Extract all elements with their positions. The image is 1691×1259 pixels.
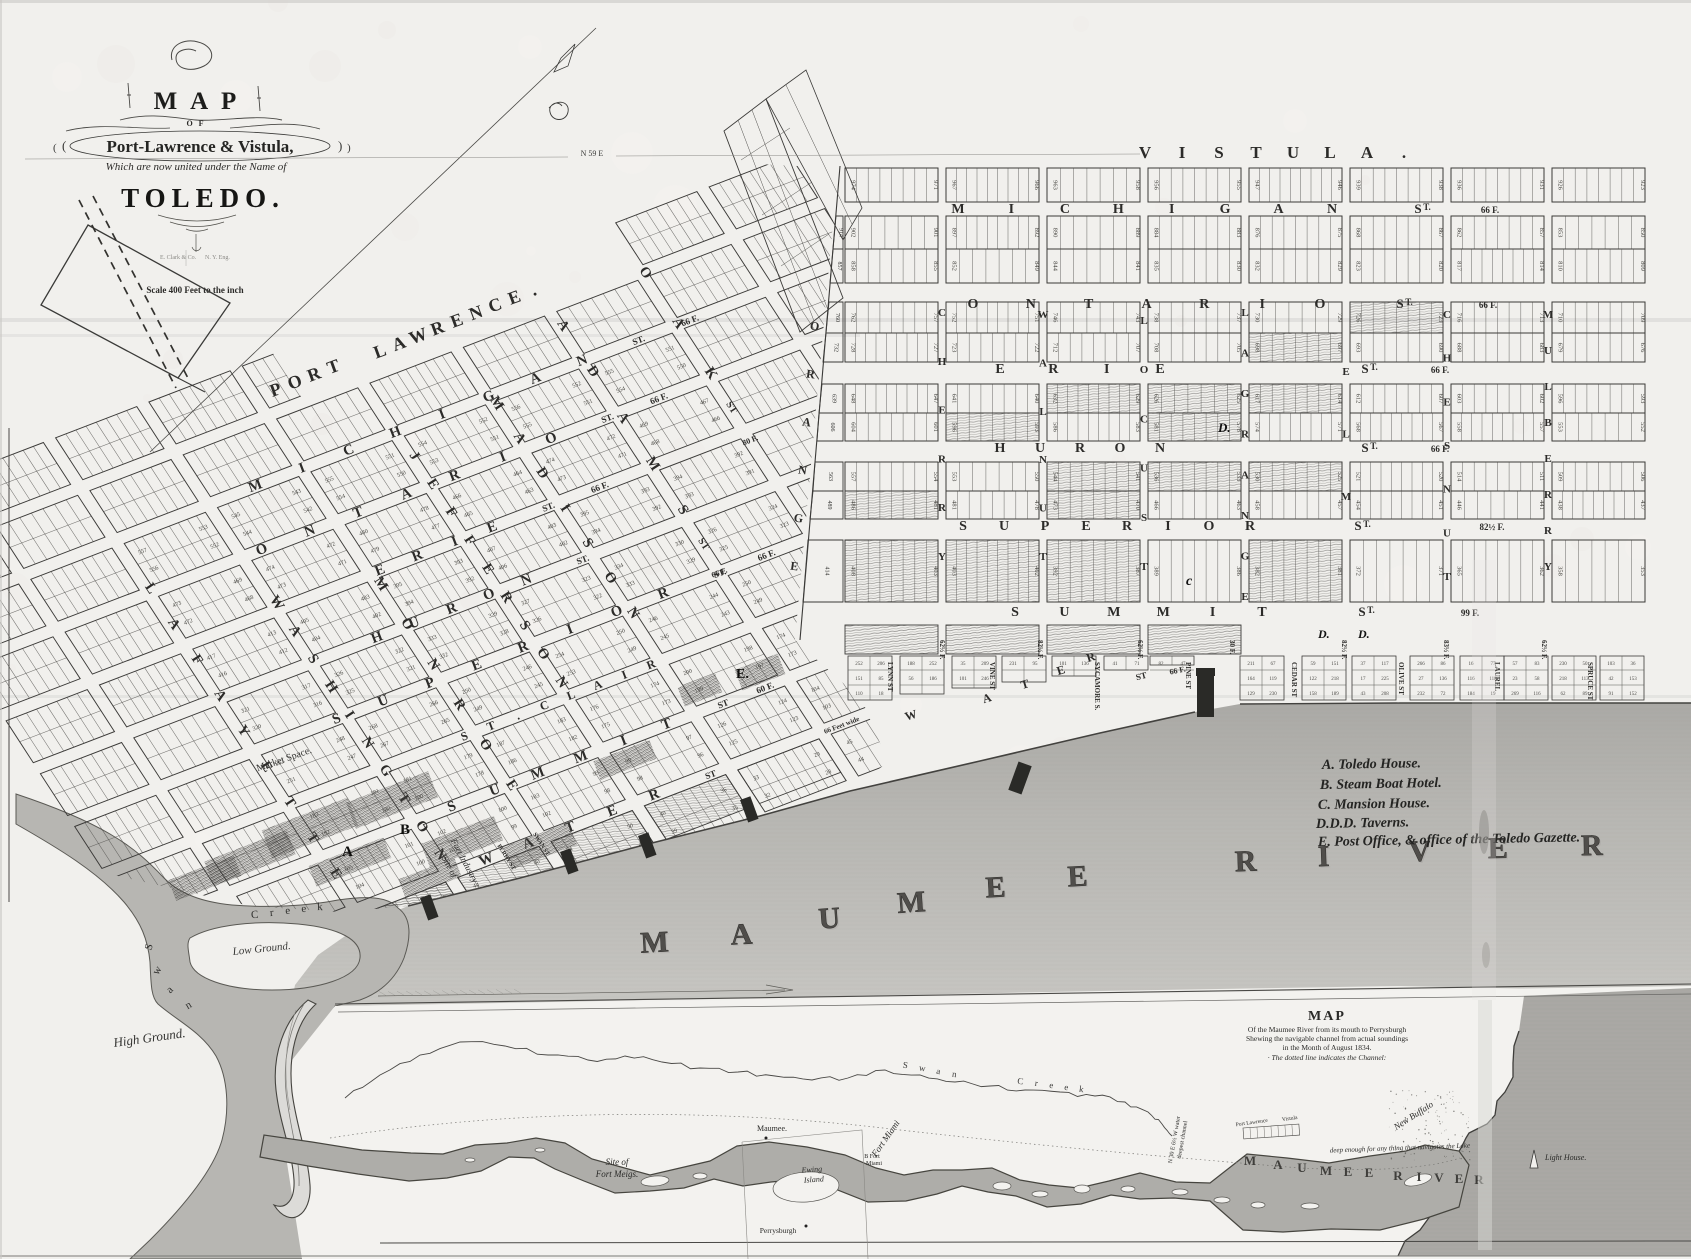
svg-text:in the Month of August 1834.: in the Month of August 1834. <box>1283 1043 1372 1052</box>
svg-text:82½ F.: 82½ F. <box>1480 522 1505 532</box>
svg-text:603: 603 <box>1456 394 1463 404</box>
svg-text:G: G <box>1220 202 1231 217</box>
svg-text:810: 810 <box>1557 261 1564 271</box>
svg-text:414: 414 <box>824 567 830 576</box>
svg-text:Miami: Miami <box>866 1161 882 1167</box>
svg-text:211: 211 <box>1247 662 1255 667</box>
svg-text:890: 890 <box>1052 228 1059 238</box>
svg-text:62½ F.: 62½ F. <box>938 640 946 660</box>
svg-text:441: 441 <box>1538 500 1545 510</box>
svg-text:857: 857 <box>836 262 842 271</box>
svg-text:632: 632 <box>1052 394 1059 404</box>
svg-text:486: 486 <box>850 500 857 511</box>
svg-text:509: 509 <box>1557 472 1564 482</box>
svg-text:U: U <box>1544 345 1552 357</box>
svg-text:857: 857 <box>1538 228 1545 239</box>
svg-text:M: M <box>1157 605 1170 620</box>
svg-text:N: N <box>1327 202 1337 217</box>
svg-text:SYCAMORE S.: SYCAMORE S. <box>1093 662 1101 710</box>
svg-text:A: A <box>1361 143 1375 162</box>
svg-text:Of the Maumee River from its m: Of the Maumee River from its mouth to Pe… <box>1248 1025 1406 1034</box>
svg-text:I: I <box>1179 143 1188 162</box>
svg-text:U: U <box>817 901 841 935</box>
svg-text:693: 693 <box>1355 343 1362 353</box>
svg-text:B. Steam Boat Hotel.: B. Steam Boat Hotel. <box>1319 776 1442 793</box>
svg-text:A: A <box>1241 469 1249 481</box>
svg-text:586: 586 <box>1052 422 1059 433</box>
svg-text:Island: Island <box>803 1174 826 1185</box>
svg-text:U: U <box>1039 503 1047 515</box>
svg-text:Maumee.: Maumee. <box>757 1124 787 1133</box>
svg-text:218: 218 <box>1331 677 1339 682</box>
svg-text:853: 853 <box>1557 228 1564 238</box>
svg-text:101: 101 <box>959 677 967 682</box>
svg-text:544: 544 <box>1052 472 1059 483</box>
svg-text:58: 58 <box>1535 677 1541 682</box>
svg-text:593: 593 <box>1639 394 1646 404</box>
svg-text:639: 639 <box>830 394 836 403</box>
svg-text:966: 966 <box>1033 180 1040 191</box>
svg-text:C: C <box>1443 309 1451 321</box>
svg-text:626: 626 <box>1153 394 1160 405</box>
svg-text:823: 823 <box>1355 261 1362 271</box>
svg-text:709: 709 <box>1639 313 1646 323</box>
svg-text:738: 738 <box>1153 313 1160 323</box>
svg-text:U: U <box>1297 1160 1307 1175</box>
svg-text:E: E <box>995 362 1004 377</box>
svg-text:438: 438 <box>1557 500 1564 510</box>
svg-text:A. Toledo House.: A. Toledo House. <box>1321 756 1421 773</box>
svg-text:N 59 E: N 59 E <box>581 149 604 158</box>
svg-text:30 F.: 30 F. <box>1228 640 1236 654</box>
svg-text:S: S <box>959 519 967 534</box>
svg-text:17: 17 <box>1361 677 1367 682</box>
svg-text:O: O <box>1315 297 1326 312</box>
svg-text:358: 358 <box>1557 566 1564 576</box>
svg-text:567: 567 <box>1437 422 1444 433</box>
svg-text:e: e <box>285 905 291 917</box>
svg-text:R: R <box>1199 297 1210 312</box>
svg-text:66 F.: 66 F. <box>1479 300 1497 310</box>
svg-text:558: 558 <box>1456 422 1463 432</box>
svg-text:S: S <box>1358 604 1365 619</box>
svg-text:E: E <box>1344 1164 1353 1179</box>
svg-text:403: 403 <box>951 566 958 576</box>
svg-text:408: 408 <box>850 566 857 576</box>
svg-text:23: 23 <box>1513 677 1519 682</box>
svg-text:R: R <box>1241 429 1250 441</box>
svg-text:Port-Lawrence & Vistula,: Port-Lawrence & Vistula, <box>106 137 293 156</box>
svg-text:I: I <box>1169 202 1174 217</box>
svg-text:H: H <box>995 441 1006 456</box>
svg-text:72: 72 <box>1441 692 1447 697</box>
svg-text:67: 67 <box>1271 662 1277 667</box>
svg-text:36: 36 <box>1631 662 1637 667</box>
svg-text:62½ F.: 62½ F. <box>1540 640 1548 660</box>
svg-text:H: H <box>938 356 947 368</box>
svg-text:66 F.: 66 F. <box>1431 365 1449 375</box>
svg-text:923: 923 <box>1639 180 1646 190</box>
svg-text:C: C <box>938 307 946 319</box>
svg-text:91: 91 <box>1609 692 1615 697</box>
svg-text:A: A <box>1039 357 1047 369</box>
svg-text:D.: D. <box>1317 627 1330 641</box>
svg-text:641: 641 <box>951 394 958 404</box>
svg-text:T.: T. <box>1363 519 1371 529</box>
svg-text:581: 581 <box>1153 422 1160 432</box>
svg-text:S: S <box>1214 143 1225 162</box>
svg-text:R: R <box>1234 845 1257 879</box>
svg-text:473: 473 <box>1052 500 1059 510</box>
svg-text:LYNN ST: LYNN ST <box>886 662 894 692</box>
svg-text:E: E <box>938 405 945 417</box>
svg-text:E. Clark & Co.: E. Clark & Co. <box>160 255 197 261</box>
svg-text:E: E <box>1155 362 1164 377</box>
svg-text:850: 850 <box>1639 228 1646 238</box>
svg-text:849: 849 <box>1033 261 1040 271</box>
svg-text:947: 947 <box>1254 180 1261 191</box>
svg-text:489: 489 <box>826 501 832 510</box>
svg-text:S: S <box>1361 361 1368 376</box>
svg-text:82½ F.: 82½ F. <box>1340 640 1348 660</box>
svg-text:612: 612 <box>1355 394 1362 404</box>
svg-text:MAP: MAP <box>1308 1009 1346 1024</box>
svg-text:L: L <box>1342 429 1349 441</box>
svg-text:OLIVE ST: OLIVE ST <box>1397 662 1405 695</box>
svg-text:679: 679 <box>1557 343 1564 353</box>
svg-text:S: S <box>1444 440 1450 452</box>
svg-text:T.: T. <box>1370 362 1378 372</box>
svg-text:647: 647 <box>932 394 939 405</box>
svg-text:P: P <box>1041 519 1050 534</box>
svg-text:T: T <box>1443 571 1451 583</box>
svg-text:392: 392 <box>1052 566 1059 576</box>
svg-text:231: 231 <box>1009 662 1017 667</box>
svg-text:470: 470 <box>1134 500 1141 510</box>
svg-text:727: 727 <box>932 343 939 354</box>
svg-text:S: S <box>1396 296 1403 311</box>
svg-text:L: L <box>1544 381 1551 393</box>
svg-text:153: 153 <box>1629 677 1637 682</box>
svg-text:152: 152 <box>1629 692 1637 697</box>
svg-text:59: 59 <box>1311 662 1317 667</box>
svg-text:Shewing the navigable channel: Shewing the navigable channel from actua… <box>1246 1034 1408 1043</box>
svg-text:O: O <box>1140 364 1149 376</box>
svg-text:L: L <box>1140 315 1147 327</box>
svg-text:82: 82 <box>1159 662 1165 667</box>
svg-text:V: V <box>1139 143 1153 162</box>
svg-text:D.: D. <box>1357 627 1370 641</box>
svg-text:688: 688 <box>1456 343 1463 353</box>
svg-text:): ) <box>347 142 351 154</box>
svg-text:926: 926 <box>1557 180 1564 191</box>
svg-text:Light House.: Light House. <box>1544 1153 1586 1162</box>
svg-text:601: 601 <box>932 422 939 432</box>
svg-text:640: 640 <box>1033 394 1040 404</box>
svg-text:I: I <box>1210 605 1215 620</box>
svg-text:151: 151 <box>855 677 863 682</box>
svg-text:H: H <box>1113 202 1124 217</box>
svg-text:186: 186 <box>929 677 937 682</box>
svg-text:U: U <box>1443 527 1451 539</box>
svg-text:252: 252 <box>855 662 863 667</box>
svg-text:596: 596 <box>951 422 958 433</box>
svg-text:R: R <box>1393 1168 1403 1183</box>
svg-text:82½ F.: 82½ F. <box>1036 640 1044 660</box>
svg-text:189: 189 <box>1331 692 1339 697</box>
svg-text:729: 729 <box>1336 313 1343 323</box>
svg-text:T.: T. <box>1405 297 1413 307</box>
svg-text:B: B <box>400 822 410 838</box>
svg-text:T.: T. <box>1367 605 1375 615</box>
svg-text:841: 841 <box>1134 261 1141 271</box>
svg-text:218: 218 <box>1559 677 1567 682</box>
svg-text:R: R <box>1544 489 1553 501</box>
svg-text:602: 602 <box>1538 394 1545 404</box>
svg-text:S: S <box>1354 518 1361 533</box>
svg-text:S: S <box>1141 512 1147 524</box>
svg-text:353: 353 <box>1639 566 1646 576</box>
svg-text:A: A <box>1274 202 1285 217</box>
svg-text:E: E <box>1365 1165 1374 1180</box>
svg-text:G: G <box>1241 550 1250 562</box>
svg-text:158: 158 <box>1309 692 1317 697</box>
svg-text:550: 550 <box>1033 472 1040 482</box>
svg-text:506: 506 <box>1639 472 1646 483</box>
svg-text:M: M <box>896 885 927 920</box>
svg-text:O: O <box>1115 441 1126 456</box>
svg-text:382: 382 <box>1254 566 1261 576</box>
svg-text:I: I <box>1009 202 1014 217</box>
svg-text:T: T <box>1039 551 1047 563</box>
svg-text:269: 269 <box>1511 692 1519 697</box>
svg-text:437: 437 <box>1639 500 1646 511</box>
svg-text:728: 728 <box>850 343 857 353</box>
svg-text:E: E <box>1544 453 1551 465</box>
svg-text:884: 884 <box>1153 228 1160 239</box>
svg-text:35: 35 <box>961 662 967 667</box>
svg-text:967: 967 <box>951 180 958 191</box>
svg-text:D.D.D. Taverns.: D.D.D. Taverns. <box>1315 815 1409 832</box>
svg-text:C: C <box>1140 413 1148 425</box>
svg-text:814: 814 <box>1538 261 1545 272</box>
svg-text:N: N <box>1241 510 1249 522</box>
svg-text:U: U <box>1287 143 1301 162</box>
svg-text:50: 50 <box>1583 662 1589 667</box>
svg-text:708: 708 <box>1153 343 1160 353</box>
svg-text:A: A <box>342 844 353 860</box>
svg-text:Ewing: Ewing <box>800 1164 822 1174</box>
svg-text:867: 867 <box>1437 228 1444 239</box>
svg-text:W: W <box>1038 309 1049 321</box>
svg-text:230: 230 <box>1269 692 1277 697</box>
svg-text:83: 83 <box>1535 662 1541 667</box>
svg-text:955: 955 <box>1235 180 1242 190</box>
svg-text:L: L <box>1039 406 1046 418</box>
svg-text:830: 830 <box>1235 261 1242 271</box>
svg-text:H: H <box>1443 353 1452 365</box>
svg-text:710: 710 <box>1557 313 1564 323</box>
svg-text:723: 723 <box>951 343 958 353</box>
svg-text:232: 232 <box>1417 692 1425 697</box>
svg-text:712: 712 <box>1052 343 1059 353</box>
svg-text:Y: Y <box>938 551 946 563</box>
svg-text:604: 604 <box>850 422 857 433</box>
svg-text:18: 18 <box>879 692 885 697</box>
svg-text:365: 365 <box>1456 566 1463 576</box>
svg-text:E: E <box>1081 519 1090 534</box>
svg-text:I: I <box>1259 297 1264 312</box>
svg-text:852: 852 <box>951 261 958 271</box>
svg-text:M: M <box>1341 491 1352 503</box>
svg-text:820: 820 <box>1437 261 1444 271</box>
svg-text:T.: T. <box>1423 202 1431 212</box>
svg-text:M: M <box>639 925 669 959</box>
svg-text:VINE ST: VINE ST <box>988 662 996 690</box>
svg-text:M: M <box>1107 605 1120 620</box>
svg-text:N. Y. Eng.: N. Y. Eng. <box>205 255 230 261</box>
svg-text:83½ F.: 83½ F. <box>1442 640 1450 660</box>
svg-text:110: 110 <box>855 692 863 697</box>
svg-text:C: C <box>250 909 259 922</box>
svg-text:· The dotted line indicates th: · The dotted line indicates the Channel: <box>1268 1053 1387 1062</box>
svg-text:403: 403 <box>932 566 939 576</box>
svg-text:V: V <box>1434 1170 1444 1185</box>
svg-text:892: 892 <box>1033 228 1040 238</box>
svg-text:514: 514 <box>1456 472 1463 483</box>
svg-text:151: 151 <box>1331 662 1339 667</box>
svg-text:454: 454 <box>1355 500 1362 511</box>
svg-text:E: E <box>1443 396 1450 408</box>
svg-text:G: G <box>793 510 804 525</box>
svg-text:862: 862 <box>1456 228 1463 238</box>
svg-text:S: S <box>1414 201 1421 216</box>
svg-text:698: 698 <box>1254 343 1261 353</box>
svg-text:89: 89 <box>1583 692 1589 697</box>
svg-text:113: 113 <box>1581 677 1589 682</box>
svg-text:M: M <box>1543 309 1554 321</box>
svg-text:730: 730 <box>1254 313 1261 323</box>
svg-text:G: G <box>1241 388 1250 400</box>
svg-text:R: R <box>938 453 947 465</box>
svg-text:208: 208 <box>1381 692 1389 697</box>
svg-text:O: O <box>1204 519 1215 534</box>
svg-text:62½ F.: 62½ F. <box>1136 640 1144 660</box>
svg-text:27: 27 <box>1419 677 1425 682</box>
svg-text:971: 971 <box>932 180 939 190</box>
svg-text:246: 246 <box>981 677 989 682</box>
svg-text:R: R <box>1122 519 1133 534</box>
svg-text:939: 939 <box>1355 180 1362 190</box>
svg-text:266: 266 <box>1417 662 1425 667</box>
svg-text:938: 938 <box>1437 180 1444 190</box>
svg-text:A: A <box>1141 297 1152 312</box>
svg-text:554: 554 <box>932 472 939 483</box>
svg-text:855: 855 <box>932 261 939 271</box>
svg-text:614: 614 <box>1336 394 1343 405</box>
svg-text:963: 963 <box>1052 180 1059 190</box>
svg-text:103: 103 <box>1607 662 1615 667</box>
svg-text:629: 629 <box>1134 394 1141 404</box>
svg-text:722: 722 <box>1033 343 1040 353</box>
svg-text:T: T <box>1250 143 1263 162</box>
svg-text:402: 402 <box>1033 566 1040 576</box>
svg-text:129: 129 <box>1247 692 1255 697</box>
svg-text:A: A <box>730 917 754 951</box>
svg-text:946: 946 <box>1336 180 1343 191</box>
svg-text:574: 574 <box>1254 422 1261 433</box>
svg-text:525: 525 <box>1336 472 1343 482</box>
svg-text:716: 716 <box>1456 313 1463 324</box>
svg-text:617: 617 <box>1254 394 1261 405</box>
svg-text:(: ( <box>53 142 57 154</box>
svg-text:C: C <box>1060 202 1070 217</box>
svg-text:596: 596 <box>1557 394 1564 405</box>
svg-text:R: R <box>1075 441 1086 456</box>
svg-text:M A P: M A P <box>154 88 241 115</box>
svg-text:37: 37 <box>1361 662 1367 667</box>
svg-text:T.: T. <box>1370 441 1378 451</box>
svg-text:164: 164 <box>1247 677 1255 682</box>
svg-text:389: 389 <box>1153 566 1160 576</box>
svg-text:k: k <box>317 901 323 913</box>
svg-text:931: 931 <box>1538 180 1545 190</box>
svg-text:E: E <box>1342 366 1349 378</box>
svg-text:809: 809 <box>1639 261 1646 271</box>
svg-text:U: U <box>999 519 1009 534</box>
svg-text:Which are now united under the: Which are now united under the Name of <box>106 161 289 173</box>
svg-text:557: 557 <box>850 472 857 483</box>
svg-text:648: 648 <box>850 394 857 404</box>
svg-text:R: R <box>1544 525 1553 537</box>
svg-text:Scale 400 Feet to the inch: Scale 400 Feet to the inch <box>146 285 243 295</box>
svg-text:Site of: Site of <box>606 1157 630 1167</box>
svg-text:593: 593 <box>1033 422 1040 432</box>
svg-text:M: M <box>951 202 964 217</box>
svg-text:R: R <box>1048 362 1059 377</box>
svg-text:117: 117 <box>1381 662 1389 667</box>
svg-text:S: S <box>1361 440 1368 455</box>
svg-text:E: E <box>985 871 1007 905</box>
svg-text:530: 530 <box>1254 472 1261 482</box>
svg-text:R: R <box>1581 829 1604 862</box>
svg-text:956: 956 <box>1153 180 1160 191</box>
svg-text:Y: Y <box>1544 561 1552 573</box>
svg-text:381: 381 <box>1336 566 1343 576</box>
svg-text:876: 876 <box>1254 228 1261 239</box>
svg-text:206: 206 <box>877 662 885 667</box>
svg-text:726: 726 <box>1355 313 1362 324</box>
svg-text:N: N <box>1039 454 1047 466</box>
svg-text:U: U <box>1059 605 1069 620</box>
svg-text:N: N <box>1155 441 1165 456</box>
svg-text:386: 386 <box>1235 566 1242 577</box>
svg-text:I: I <box>1416 1169 1421 1184</box>
svg-text:889: 889 <box>1134 228 1141 238</box>
svg-text:): ) <box>338 138 342 153</box>
svg-text:S: S <box>1011 605 1019 620</box>
svg-text:42: 42 <box>1609 677 1615 682</box>
svg-text:116: 116 <box>1533 692 1541 697</box>
svg-text:553: 553 <box>951 472 958 482</box>
svg-text:829: 829 <box>1336 261 1343 271</box>
svg-text:875: 875 <box>1336 228 1343 238</box>
svg-text:B: B <box>1544 417 1552 429</box>
svg-text:(: ( <box>62 138 66 153</box>
svg-text:I: I <box>1165 519 1170 534</box>
svg-text:481: 481 <box>951 500 958 510</box>
svg-text:85: 85 <box>879 677 885 682</box>
